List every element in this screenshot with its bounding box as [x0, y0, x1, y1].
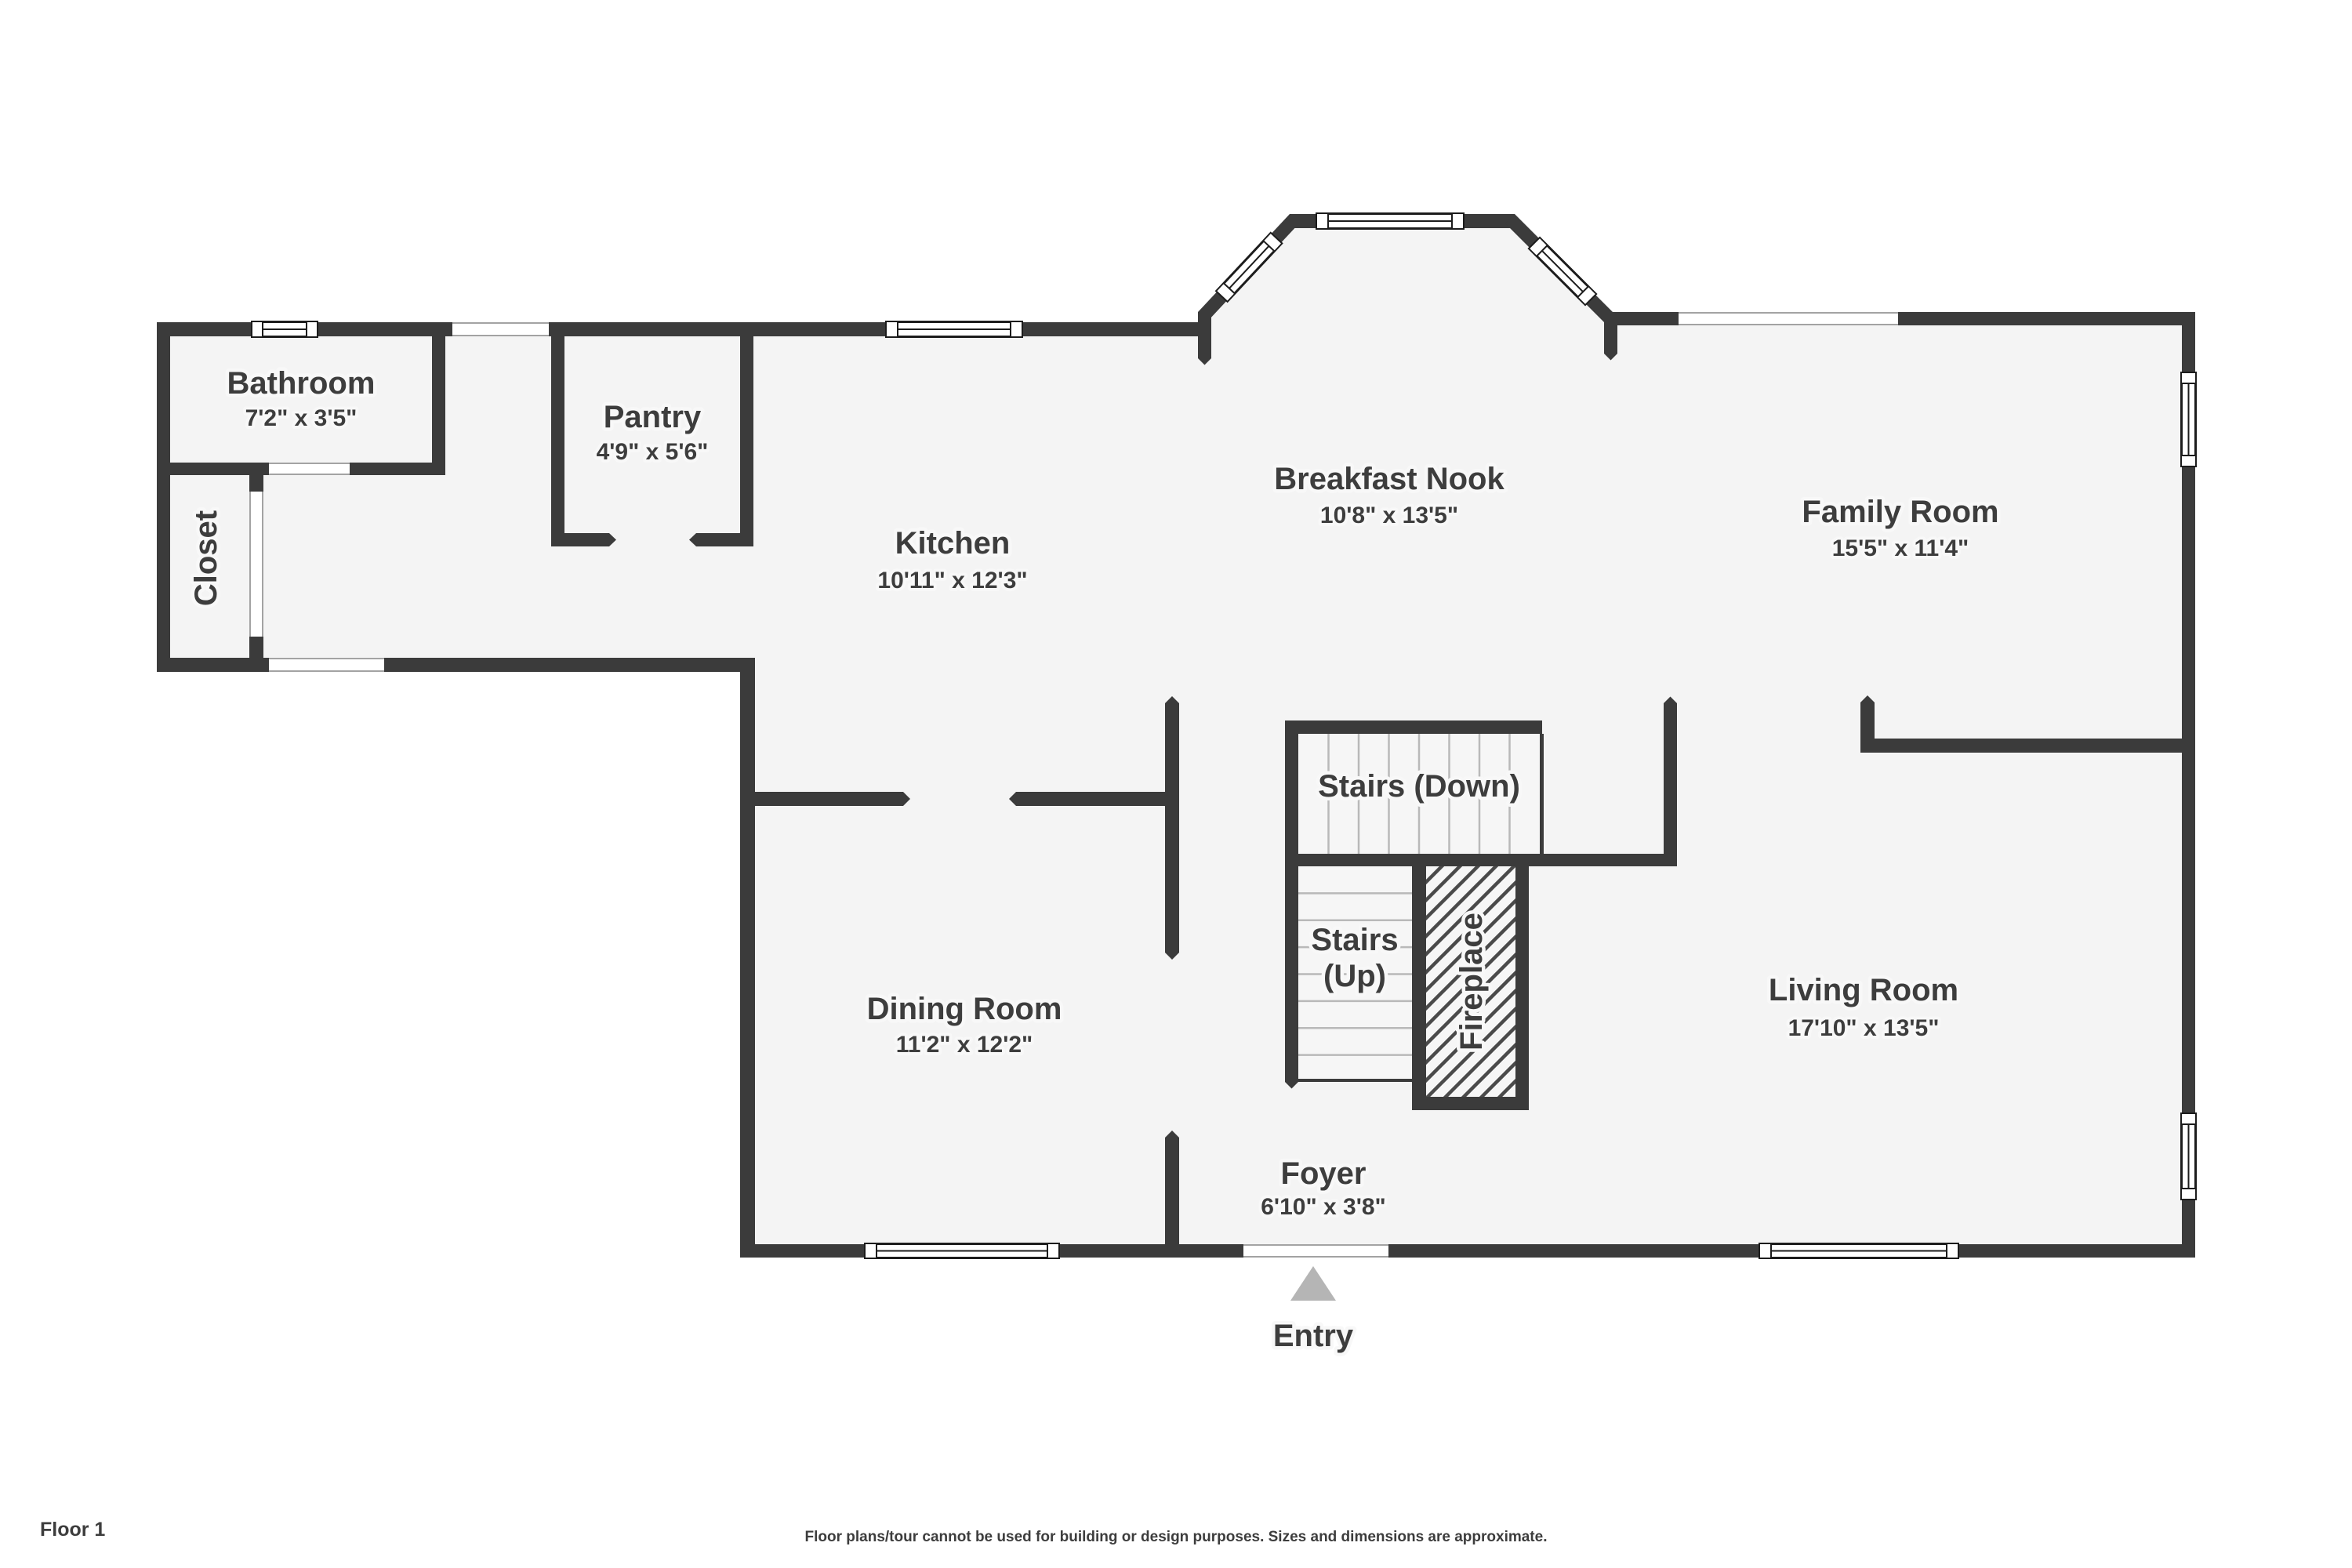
svg-text:Floor 1: Floor 1: [40, 1519, 105, 1541]
svg-text:(Up): (Up): [1323, 959, 1386, 993]
svg-text:Closet: Closet: [189, 510, 223, 606]
svg-text:Bathroom: Bathroom: [227, 366, 376, 401]
svg-text:Kitchen: Kitchen: [895, 526, 1011, 561]
svg-text:Foyer: Foyer: [1281, 1156, 1367, 1191]
svg-text:4'9" x 5'6": 4'9" x 5'6": [597, 439, 709, 465]
svg-text:10'11" x 12'3": 10'11" x 12'3": [877, 568, 1027, 593]
svg-text:Living Room: Living Room: [1769, 973, 1958, 1007]
svg-text:Family Room: Family Room: [1802, 495, 1998, 529]
svg-text:Fireplace: Fireplace: [1454, 913, 1489, 1051]
svg-text:Stairs (Down): Stairs (Down): [1318, 769, 1520, 804]
svg-text:11'2" x 12'2": 11'2" x 12'2": [896, 1032, 1033, 1058]
svg-text:Entry: Entry: [1273, 1319, 1354, 1353]
svg-text:Pantry: Pantry: [604, 400, 702, 434]
svg-text:Floor plans/tour cannot be use: Floor plans/tour cannot be used for buil…: [805, 1529, 1548, 1545]
svg-text:6'10" x 3'8": 6'10" x 3'8": [1261, 1194, 1386, 1220]
svg-text:Breakfast Nook: Breakfast Nook: [1274, 462, 1504, 496]
svg-text:10'8" x 13'5": 10'8" x 13'5": [1320, 503, 1458, 528]
svg-text:15'5" x 11'4": 15'5" x 11'4": [1832, 535, 1969, 561]
svg-text:17'10" x 13'5": 17'10" x 13'5": [1788, 1015, 1940, 1041]
svg-text:Stairs: Stairs: [1311, 923, 1398, 957]
svg-text:Dining Room: Dining Room: [867, 992, 1062, 1026]
svg-text:7'2" x 3'5": 7'2" x 3'5": [245, 405, 358, 431]
